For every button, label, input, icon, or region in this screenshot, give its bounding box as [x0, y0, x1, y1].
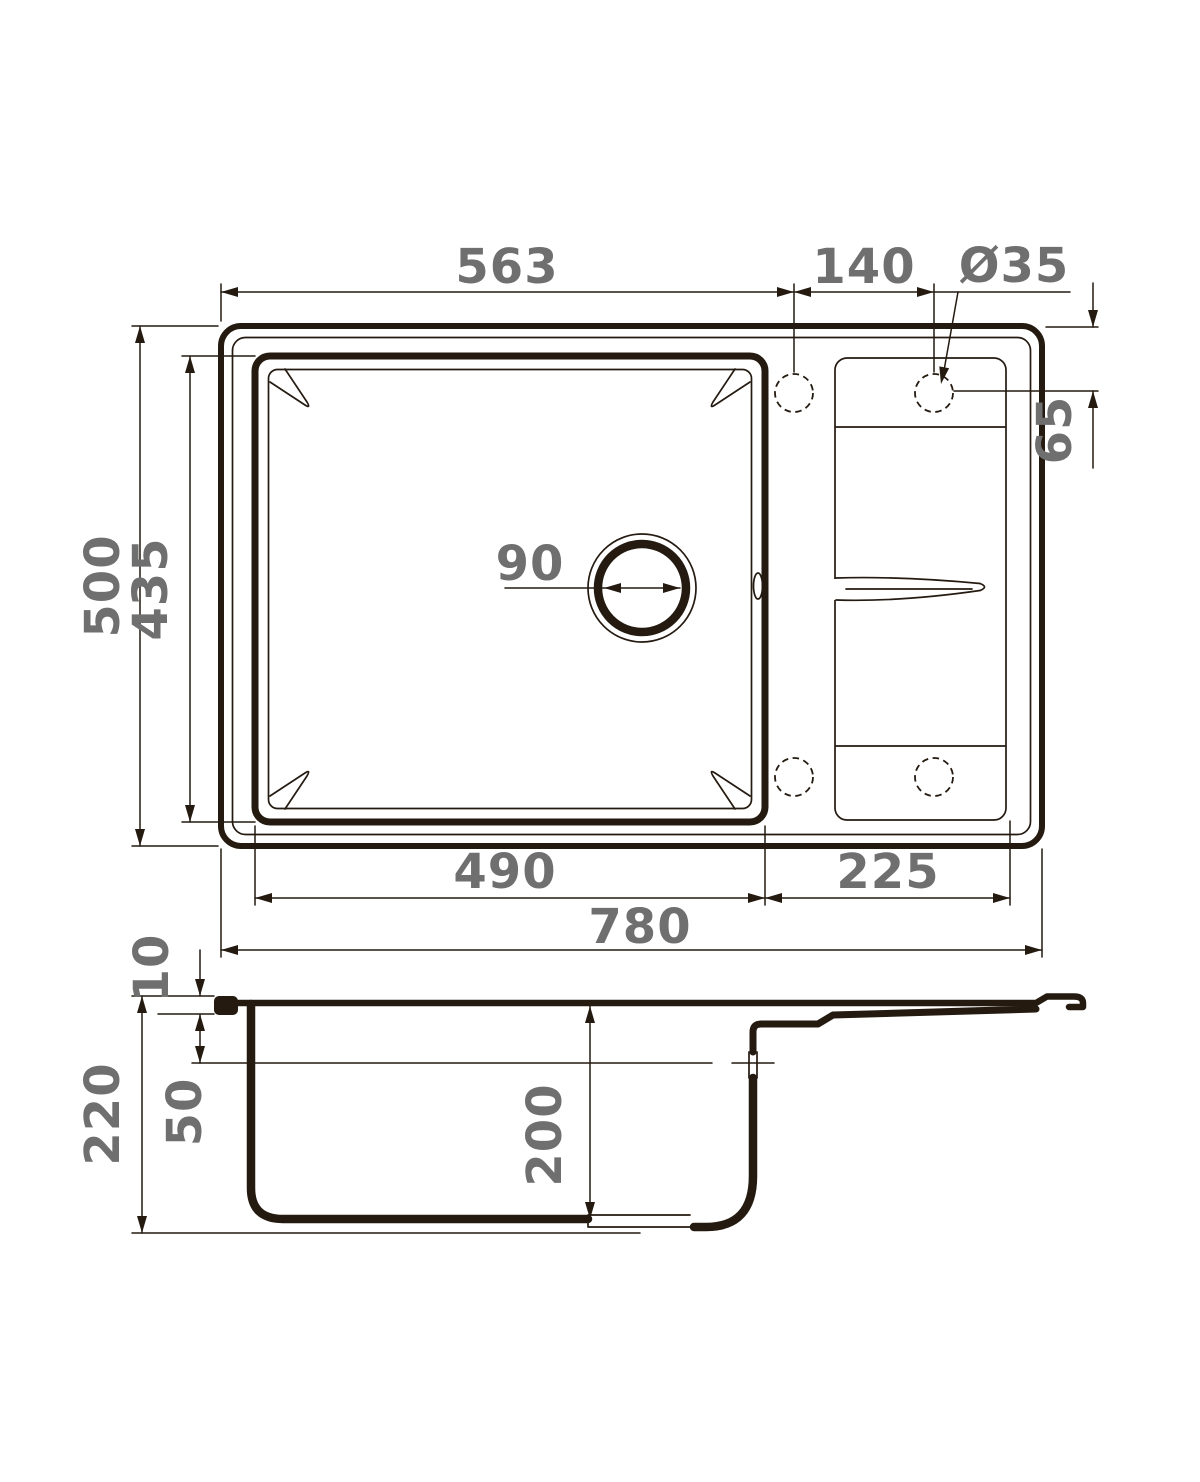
bowl-corner-bevel-bottom-left — [270, 772, 309, 809]
dim-label-edge-to-hole: 563 — [455, 239, 558, 295]
dim-label-overall-width: 780 — [588, 899, 691, 955]
arrow-563-left — [221, 287, 238, 297]
arrow-140-right — [917, 287, 934, 297]
faucet-hole-bottom-right — [915, 758, 953, 796]
arrow-500-bottom — [135, 829, 145, 846]
arrow-780-left — [221, 945, 238, 955]
overflow-slot — [754, 573, 763, 599]
arrow-140-left — [794, 287, 811, 297]
plan-dimensions: 563 140 Ø35 65 500 435 90 — [75, 238, 1098, 957]
sink-inner-rim-line — [233, 338, 1031, 835]
dim-label-drain-diameter: 90 — [496, 536, 565, 592]
arrow-50-top — [195, 1014, 205, 1031]
dim-label-bowl-width: 490 — [453, 844, 556, 900]
bowl-corner-bevel-bottom-right — [711, 772, 750, 809]
arrow-200-top — [585, 1006, 595, 1023]
groove-tip — [980, 584, 985, 591]
section-drainboard-profile — [753, 1009, 1036, 1052]
bowl-corner-bevel-top-left — [270, 369, 309, 406]
bowl-corner-bevel-top-right — [711, 369, 750, 406]
dim-label-overflow-drop: 50 — [157, 1078, 213, 1147]
arrow-50-bottom — [195, 1046, 205, 1063]
dim-label-overall-height: 220 — [75, 1062, 131, 1165]
plan-view — [221, 326, 1042, 846]
faucet-hole-top-right — [915, 374, 953, 412]
arrow-10 — [195, 979, 205, 996]
faucet-hole-top-left — [775, 374, 813, 412]
drawing-canvas: 563 140 Ø35 65 500 435 90 — [0, 0, 1200, 1482]
arrow-220-bottom — [137, 1216, 147, 1233]
arrow-500-top — [135, 326, 145, 343]
section-top-line — [236, 997, 1083, 1008]
arrow-780-right — [1025, 945, 1042, 955]
groove-upper-line — [836, 578, 980, 584]
faucet-hole-bottom-left — [775, 758, 813, 796]
dim-label-hole-spacing: 140 — [812, 239, 915, 295]
arrow-490-right — [748, 893, 765, 903]
arrow-65-bottom — [1088, 391, 1098, 408]
section-bowl-right-profile — [694, 1078, 753, 1227]
section-view: 220 10 50 200 — [75, 934, 1083, 1233]
dim-label-hole-diameter: Ø35 — [959, 238, 1070, 294]
arrow-435-bottom — [185, 805, 195, 822]
section-left-rim-lip — [214, 996, 238, 1015]
arrow-225-right — [993, 893, 1010, 903]
groove-lower-line — [836, 591, 980, 601]
section-drain-recess — [588, 1215, 694, 1227]
arrow-435-top — [185, 356, 195, 373]
arrow-90-right — [663, 583, 680, 593]
dim-label-drainboard-width: 225 — [836, 844, 939, 900]
dim-label-bowl-opening-depth: 435 — [123, 537, 179, 640]
arrow-90-left — [604, 583, 621, 593]
hole-diameter-leader — [943, 292, 958, 376]
sink-dimension-drawing: 563 140 Ø35 65 500 435 90 — [0, 0, 1200, 1482]
arrow-65-top — [1088, 310, 1098, 327]
arrow-hole-leader — [939, 366, 949, 384]
groove-joint-mask — [832, 579, 837, 600]
dim-label-hole-offset: 65 — [1027, 396, 1083, 465]
dim-label-bowl-depth: 200 — [517, 1083, 573, 1186]
arrow-490-left — [255, 893, 272, 903]
arrow-225-left — [765, 893, 782, 903]
arrow-563-right — [777, 287, 794, 297]
dim-label-rim-thickness: 10 — [124, 934, 180, 1003]
